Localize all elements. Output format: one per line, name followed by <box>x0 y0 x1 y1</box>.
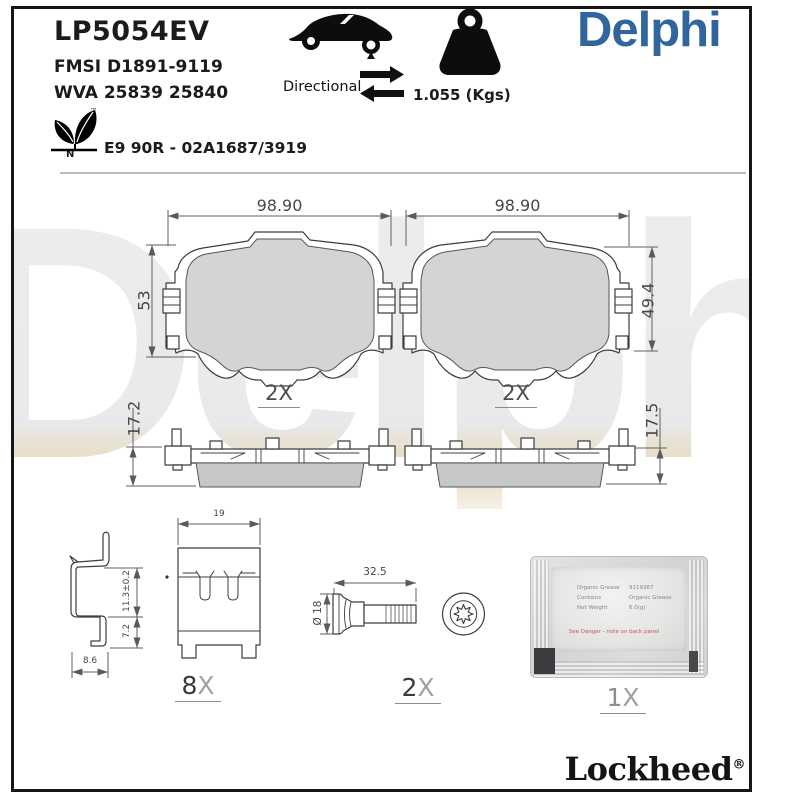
registered-mark: ® <box>733 757 746 772</box>
wva-reference: WVA 25839 25840 <box>54 83 228 103</box>
packet-corner-mark-left <box>534 648 555 674</box>
packet-label-line1: Organic Grease <box>577 583 620 593</box>
qty-pad-right: 2X <box>481 381 551 408</box>
qty-grease: 1X <box>593 683 653 714</box>
packet-label-line3: Net Weight <box>577 603 608 613</box>
qty-pad-left: 2X <box>244 381 314 408</box>
pad-side-left <box>165 429 395 487</box>
qty-pad-left-text: 2X <box>258 381 300 408</box>
fmsi-reference: FMSI D1891-9119 <box>54 57 223 77</box>
bolt-end-drawing <box>443 593 485 635</box>
car-silhouette-icon <box>287 8 395 60</box>
dim-bolt-diameter: Ø 18 <box>312 589 324 637</box>
grease-packet-photo: Organic Grease Contains Net Weight 91193… <box>530 556 708 678</box>
dim-clip-lower: 7.2 <box>122 607 132 655</box>
packet-value-line3: 6.0(g) <box>629 603 646 613</box>
qty-clip: 8X <box>168 671 228 702</box>
pad-side-right <box>405 429 635 487</box>
lockheed-text: Lockheed <box>565 750 733 788</box>
qty-bolt: 2X <box>388 673 448 704</box>
qty-clip-number: 8 <box>181 671 197 700</box>
packet-warning: See Danger - note on back panel <box>549 629 679 635</box>
pad-front-left <box>163 232 395 386</box>
weight-icon <box>432 8 508 82</box>
dim-pad-left-thickness: 17.2 <box>125 397 144 441</box>
clip-profile-drawing <box>70 532 109 646</box>
packet-label-line2: Contains <box>577 593 601 603</box>
dim-pad-right-width: 98.90 <box>406 196 629 215</box>
ece-approval-number: E9 90R - 02A1687/3919 <box>104 139 307 157</box>
clip-front-drawing <box>165 548 260 658</box>
eco-leaf-icon <box>50 106 98 152</box>
dim-clip-width: 19 <box>193 509 245 519</box>
qty-bolt-number: 2 <box>401 673 417 702</box>
header-divider <box>60 172 746 174</box>
dim-pad-left-width: 98.90 <box>168 196 391 215</box>
directional-label: Directional <box>283 79 361 95</box>
qty-bolt-x: X <box>417 673 434 702</box>
dim-clip-foot: 8.6 <box>71 656 109 666</box>
dim-pad-right-height: 49.4 <box>639 277 658 325</box>
packet-value-line1: 9119367 <box>629 583 654 593</box>
delphi-logo: Delphi <box>577 2 721 58</box>
packet-pouch <box>551 567 687 651</box>
bolt-side-drawing <box>333 594 416 634</box>
part-number: LP5054EV <box>54 16 209 47</box>
dim-pad-right-thickness: 17.5 <box>643 399 662 443</box>
packet-crimp-bottom <box>534 661 704 677</box>
weight-value: 1.055 (Kgs) <box>413 86 511 104</box>
pad-front-right <box>400 232 632 386</box>
directional-arrows-icon <box>360 64 404 102</box>
lockheed-logo: Lockheed® <box>565 750 745 788</box>
qty-clip-x: X <box>197 671 214 700</box>
packet-value-line2: Organic Grease <box>629 593 672 603</box>
dim-pad-left-height: 53 <box>135 277 154 325</box>
qty-pad-right-text: 2X <box>495 381 537 408</box>
dim-bolt-length: 32.5 <box>345 566 405 578</box>
packet-corner-mark-right <box>689 651 698 672</box>
qty-grease-x: X <box>622 683 639 712</box>
qty-grease-number: 1 <box>606 683 622 712</box>
